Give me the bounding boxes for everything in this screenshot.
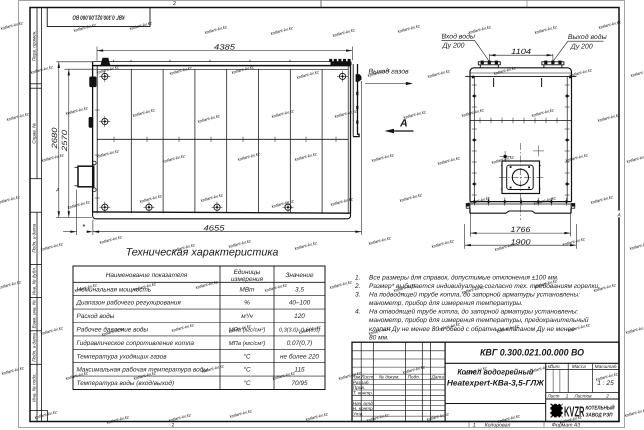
svg-text:Масса: Масса xyxy=(572,364,586,369)
svg-text:°С: °С xyxy=(243,353,251,360)
svg-text:Инв. № подл.: Инв. № подл. xyxy=(31,373,36,402)
svg-text:1104: 1104 xyxy=(511,47,531,56)
svg-text:Гидравлическое сопротивление к: Гидравлическое сопротивление котла xyxy=(77,340,195,347)
svg-text:На отводящей трубе котла, до з: На отводящей трубе котла, до запорной ар… xyxy=(369,309,579,316)
svg-text:1766: 1766 xyxy=(511,225,532,234)
svg-text:KVZR: KVZR xyxy=(564,405,585,421)
svg-text:4.: 4. xyxy=(355,309,361,316)
svg-text:На подводящей трубе котла, до: На подводящей трубе котла, до запорной а… xyxy=(369,292,580,299)
svg-text:Подп.: Подп. xyxy=(408,374,420,379)
svg-text:А: А xyxy=(55,188,60,194)
svg-text:2570: 2570 xyxy=(60,129,69,152)
svg-text:Максимальная рабочая температу: Максимальная рабочая температура воды xyxy=(77,367,209,374)
svg-text:Дата: Дата xyxy=(431,374,445,379)
svg-text:Изм.: Изм. xyxy=(352,374,362,379)
svg-text:Копировал: Копировал xyxy=(485,422,511,428)
svg-text:Единицы: Единицы xyxy=(234,269,261,276)
svg-text:Номинальная мощность: Номинальная мощность xyxy=(77,286,152,293)
svg-text:Heatexpert-КВа-3,5-ГЛЖ: Heatexpert-КВа-3,5-ГЛЖ xyxy=(447,378,545,387)
svg-text:МПа (кгс/см²): МПа (кгс/см²) xyxy=(229,340,266,347)
svg-text:А: А xyxy=(399,118,408,130)
svg-text:Значение: Значение xyxy=(285,272,313,279)
svg-text:Пров.: Пров. xyxy=(353,385,365,390)
svg-text:клапан Ду не менее 80 и обвод: клапан Ду не менее 80 и обвод с обратным… xyxy=(369,326,575,333)
svg-text:ЗАВОД РЭП: ЗАВОД РЭП xyxy=(586,412,613,418)
svg-text:1: 1 xyxy=(566,394,569,399)
svg-text:измерения: измерения xyxy=(231,276,264,283)
svg-text:не более 220: не более 220 xyxy=(280,353,319,360)
svg-text:Лист: Лист xyxy=(546,394,559,399)
svg-text:КВГ 0.300.021.00.000 ВО: КВГ 0.300.021.00.000 ВО xyxy=(72,13,124,20)
svg-text:4385: 4385 xyxy=(214,43,236,52)
svg-text:Размер* выбирается индивидуаль: Размер* выбирается индивидуально согласн… xyxy=(369,283,600,290)
svg-text:Разраб.: Разраб. xyxy=(353,380,370,385)
svg-text:70/95: 70/95 xyxy=(292,380,308,387)
svg-text:3,5: 3,5 xyxy=(295,286,304,293)
svg-text:2.: 2. xyxy=(354,283,361,290)
svg-text:40–100: 40–100 xyxy=(289,300,311,307)
svg-text:Выход газов: Выход газов xyxy=(369,69,410,76)
svg-text:Диапазон рабочего регулировани: Диапазон рабочего регулирования xyxy=(76,300,182,307)
svg-text:Лист: Лист xyxy=(360,374,373,379)
svg-text:№ докум.: № докум. xyxy=(379,374,400,379)
svg-text:Температура воды (вход/выход): Температура воды (вход/выход) xyxy=(77,380,175,387)
svg-text:Вход воды: Вход воды xyxy=(442,33,475,40)
svg-text:Справ. №: Справ. № xyxy=(31,123,36,144)
svg-text:4655: 4655 xyxy=(204,224,226,233)
svg-text:КОТЕЛЬНЫЙ: КОТЕЛЬНЫЙ xyxy=(586,404,615,411)
svg-text:2: 2 xyxy=(172,422,175,428)
svg-text:Наименование показателя: Наименование показателя xyxy=(106,272,188,279)
svg-text:Формат А3: Формат А3 xyxy=(552,422,580,428)
svg-text:1 : 25: 1 : 25 xyxy=(597,380,614,387)
svg-text:115: 115 xyxy=(294,367,305,374)
svg-text:м³/ч: м³/ч xyxy=(241,313,253,320)
svg-text:Масштаб: Масштаб xyxy=(595,364,617,369)
svg-text:манометр, прибор для измерения: манометр, прибор для измерения температу… xyxy=(369,300,523,307)
svg-text:2680: 2680 xyxy=(50,127,59,150)
svg-text:Рабочее давление воды: Рабочее давление воды xyxy=(77,327,149,334)
svg-text:Подп. и дата: Подп. и дата xyxy=(31,223,36,252)
svg-text:°С: °С xyxy=(243,380,251,387)
svg-text:Инв. № дубл.: Инв. № дубл. xyxy=(31,267,36,295)
svg-text:Утв.: Утв. xyxy=(353,411,364,416)
svg-text:Ду 200: Ду 200 xyxy=(442,42,465,49)
svg-text:3.: 3. xyxy=(355,292,361,299)
svg-text:Техническая характеристика: Техническая характеристика xyxy=(126,247,279,259)
svg-text:0,07(0,7): 0,07(0,7) xyxy=(287,340,313,347)
svg-text:МВт: МВт xyxy=(240,286,256,293)
svg-text:Н. контр.: Н. контр. xyxy=(353,406,374,411)
svg-text:Ду 200: Ду 200 xyxy=(570,43,593,50)
svg-text:Подп. и дата: Подп. и дата xyxy=(31,333,36,362)
svg-text:Температура уходящих газов: Температура уходящих газов xyxy=(77,353,168,360)
svg-text:0,3(3,0)–0,6(6,0): 0,3(3,0)–0,6(6,0) xyxy=(279,328,320,334)
svg-text:1.: 1. xyxy=(355,275,361,282)
svg-text:%: % xyxy=(244,300,250,307)
svg-text:°С: °С xyxy=(243,367,251,374)
svg-text:МПа (кгс/см²): МПа (кгс/см²) xyxy=(229,327,266,334)
svg-text:Взам. инв. №: Взам. инв. № xyxy=(31,300,36,328)
svg-text:2: 2 xyxy=(605,394,609,399)
svg-text:Все размеры для справок, допус: Все размеры для справок, допустимые откл… xyxy=(369,275,559,282)
svg-text:80 мм.: 80 мм. xyxy=(369,334,389,341)
svg-text:Т. контр.: Т. контр. xyxy=(353,390,373,395)
svg-text:1: 1 xyxy=(473,422,476,428)
svg-text:КВГ 0.300.021.00.000 ВО: КВГ 0.300.021.00.000 ВО xyxy=(480,346,585,357)
svg-text:120: 120 xyxy=(294,313,305,320)
svg-text:Листов: Листов xyxy=(573,394,592,399)
svg-text:2: 2 xyxy=(173,1,176,7)
svg-text:1900: 1900 xyxy=(511,237,532,246)
svg-text:Перв. примен.: Перв. примен. xyxy=(31,30,36,61)
svg-text:Расход воды: Расход воды xyxy=(77,313,115,320)
svg-text:Котел водогрейный: Котел водогрейный xyxy=(457,367,533,376)
svg-text:Лит.: Лит. xyxy=(549,364,561,369)
svg-text:А: А xyxy=(616,212,621,218)
svg-text:манометр, прибор для измерения: манометр, прибор для измерения температу… xyxy=(369,317,589,324)
svg-text:Выход воды: Выход воды xyxy=(568,34,607,41)
